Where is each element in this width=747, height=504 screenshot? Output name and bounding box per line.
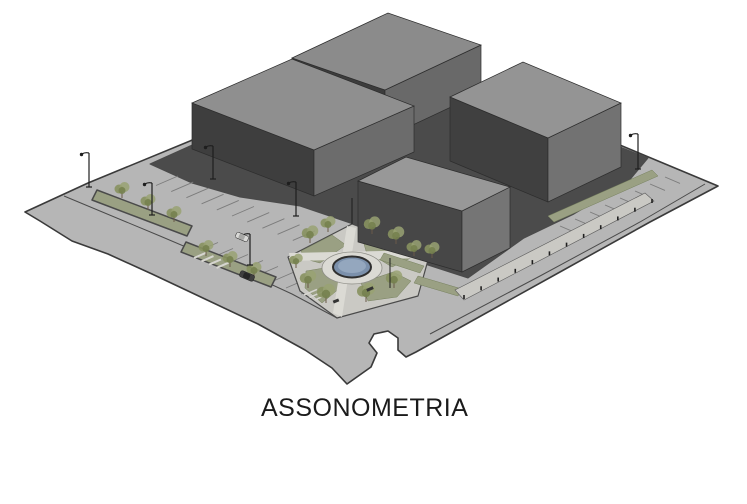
drawing-title: ASSONOMETRIA (261, 394, 468, 423)
axonometric-scene (0, 0, 747, 504)
drawing-sheet: ASSONOMETRIA (0, 0, 747, 504)
fountain-water (338, 259, 366, 273)
